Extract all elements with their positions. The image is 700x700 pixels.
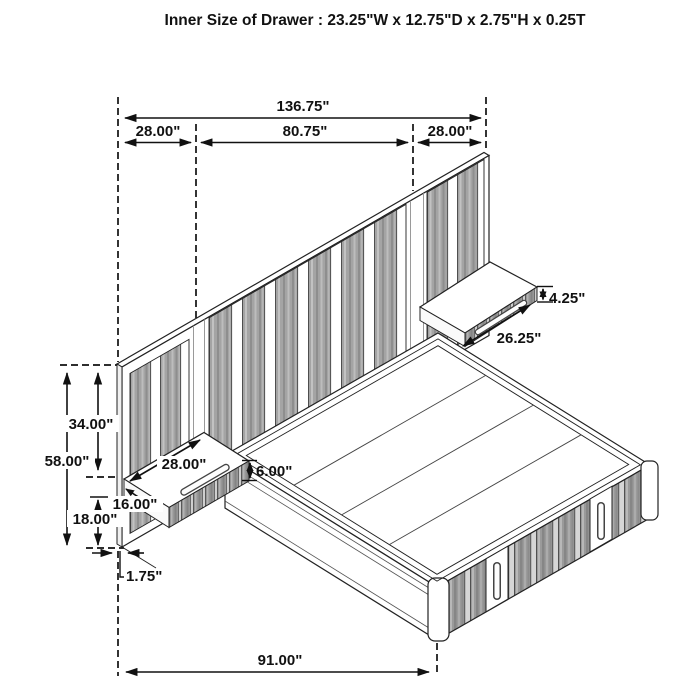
dim-left-nightstand-height: 6.00"	[256, 463, 292, 480]
drawer-inner-size-title: Inner Size of Drawer : 23.25"W x 12.75"D…	[165, 12, 586, 29]
dim-total-width: 136.75"	[277, 98, 330, 115]
dim-headboard-total-height: 58.00"	[45, 453, 90, 470]
dim-headboard-upper-height: 34.00"	[69, 416, 114, 433]
bed-corner-cap-right	[641, 461, 658, 520]
dim-right-section-width: 28.00"	[428, 123, 473, 140]
dim-left-section-width: 28.00"	[136, 123, 181, 140]
dim-headboard-lower-height: 18.00"	[73, 511, 118, 528]
dim-bed-length: 91.00"	[258, 652, 303, 669]
bed-dimension-diagram: Inner Size of Drawer : 23.25"W x 12.75"D…	[0, 0, 700, 700]
dim-left-nightstand-width: 28.00"	[162, 456, 207, 473]
bed-corner-cap-left	[428, 578, 449, 641]
dim-right-nightstand-height: 4.25"	[549, 290, 585, 307]
diagram-page: Inner Size of Drawer : 23.25"W x 12.75"D…	[0, 0, 700, 700]
dim-center-section-width: 80.75"	[283, 123, 328, 140]
dim-left-nightstand-depth: 16.00"	[113, 496, 158, 513]
dim-panel-thickness: 1.75"	[126, 568, 162, 585]
dim-right-nightstand-width: 26.25"	[497, 330, 542, 347]
